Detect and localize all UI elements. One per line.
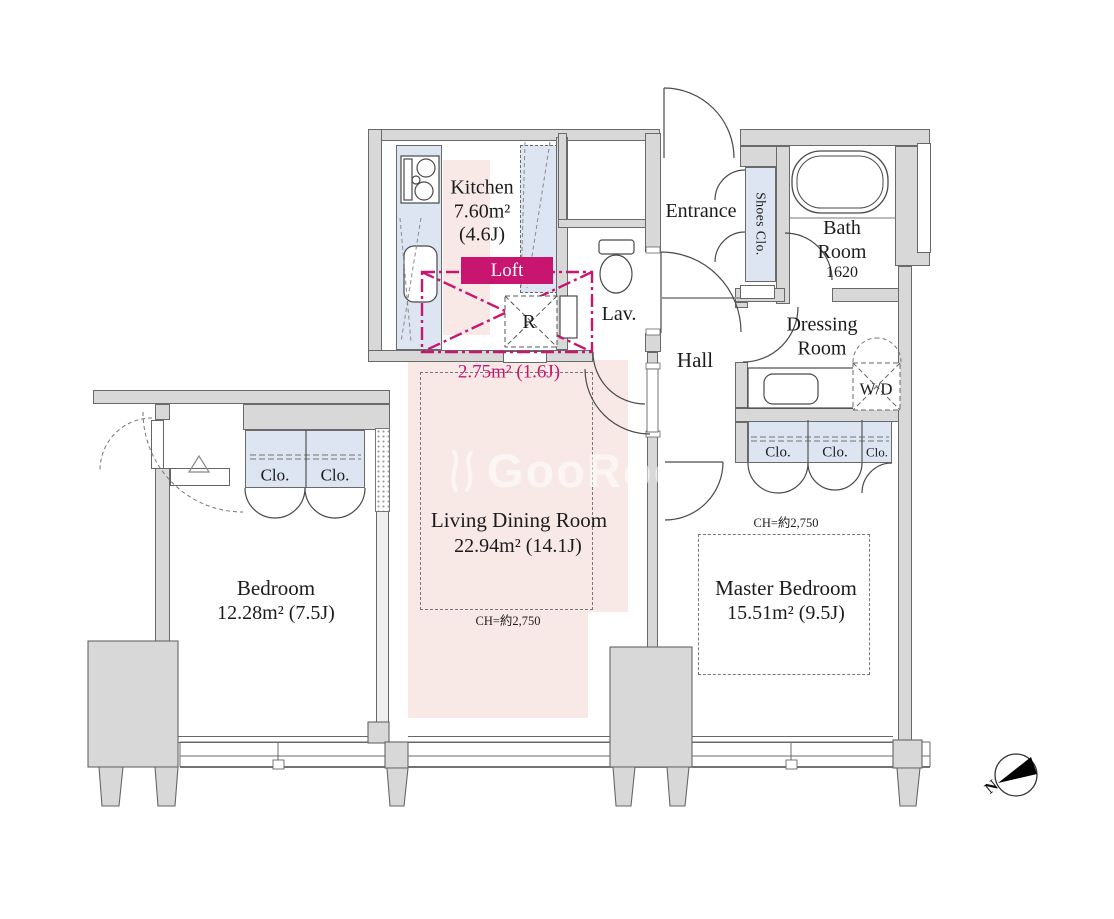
master-closet-label: Clo. bbox=[765, 445, 790, 462]
glass-partition bbox=[375, 428, 390, 512]
watermark-icon bbox=[445, 448, 479, 494]
utility-niche bbox=[917, 143, 931, 253]
master-closet-label: Clo. bbox=[866, 446, 888, 461]
loft-banner: Loft bbox=[461, 257, 553, 284]
wall bbox=[155, 404, 170, 420]
watermark-text: GooRooM bbox=[487, 443, 726, 498]
wall bbox=[368, 129, 660, 141]
bathroom-name-line2: Room bbox=[818, 241, 867, 265]
lavatory-label: Lav. bbox=[602, 303, 637, 325]
living-window bbox=[408, 736, 610, 743]
balcony-lines bbox=[180, 742, 930, 767]
loft-storage-label: R bbox=[522, 311, 535, 333]
wall bbox=[368, 129, 382, 362]
bathroom-size: 1620 bbox=[818, 264, 867, 283]
wall bbox=[558, 133, 567, 228]
wall bbox=[243, 404, 390, 430]
loft-area-label: 2.75m² (1.6J) bbox=[458, 361, 560, 382]
master-closet-label: Clo. bbox=[822, 445, 847, 462]
bathroom-label: Bath Room 1620 bbox=[818, 217, 867, 283]
bedroom-entry-door bbox=[151, 420, 164, 469]
vanity-icon bbox=[748, 368, 854, 408]
wall bbox=[645, 133, 661, 252]
compass-needle-icon bbox=[998, 757, 1037, 783]
bedroom-entry-sill bbox=[170, 468, 230, 486]
wall bbox=[898, 266, 912, 742]
wall bbox=[740, 129, 930, 146]
master-window bbox=[692, 736, 893, 743]
compass: N bbox=[982, 754, 1037, 797]
kitchen-tatami: (4.6J) bbox=[450, 224, 513, 248]
master-name: Master Bedroom bbox=[715, 577, 857, 601]
watermark: GooRooM bbox=[445, 443, 726, 498]
bedroom-area: 12.28m² (7.5J) bbox=[217, 602, 335, 624]
kitchen-counter bbox=[396, 145, 442, 350]
bathtub-icon bbox=[792, 151, 888, 213]
bedroom-name: Bedroom bbox=[237, 577, 315, 601]
hall-label: Hall bbox=[677, 349, 713, 373]
wall bbox=[368, 350, 593, 362]
bedroom-closet-label: Clo. bbox=[321, 465, 350, 484]
washer-dryer-label: W/D bbox=[859, 379, 892, 398]
master-area: 15.51m² (9.5J) bbox=[727, 602, 845, 624]
living-ceiling-height: CH=約2,750 bbox=[475, 614, 540, 628]
floorplan: GooRooM bbox=[0, 0, 1114, 919]
wall bbox=[645, 333, 661, 352]
kitchen-area: 7.60m² bbox=[450, 200, 513, 224]
balcony-dividers bbox=[273, 760, 797, 769]
wall bbox=[776, 146, 790, 304]
entrance-step-line bbox=[662, 297, 740, 299]
dressing-room-line1: Dressing bbox=[786, 313, 857, 337]
wall bbox=[735, 362, 748, 408]
bathroom-name-line1: Bath bbox=[818, 217, 867, 241]
living-area: 22.94m² (14.1J) bbox=[454, 535, 582, 557]
loft-label: Loft bbox=[491, 260, 524, 282]
kitchen-name: Kitchen bbox=[450, 177, 513, 201]
wall bbox=[735, 302, 748, 308]
dressing-room-label: Dressing Room bbox=[786, 313, 857, 360]
kitchen-label: Kitchen 7.60m² (4.6J) bbox=[450, 177, 513, 248]
entrance-label: Entrance bbox=[665, 200, 736, 222]
entrance-step-stone bbox=[740, 285, 775, 299]
master-ceiling-height: CH=約2,750 bbox=[753, 516, 818, 530]
wall bbox=[647, 352, 658, 742]
compass-circle bbox=[995, 754, 1037, 796]
wall bbox=[558, 219, 652, 228]
bedroom-closet-label: Clo. bbox=[261, 465, 290, 484]
toilet-icon bbox=[599, 240, 634, 293]
wall bbox=[155, 468, 170, 652]
wall bbox=[735, 422, 748, 463]
partition-wall bbox=[376, 512, 389, 736]
wall bbox=[735, 408, 912, 422]
living-name: Living Dining Room bbox=[431, 509, 607, 533]
wall bbox=[93, 390, 390, 404]
bedroom-window bbox=[172, 736, 368, 743]
shoes-closet-label: Shoes Clo. bbox=[753, 192, 768, 256]
dressing-room-line2: Room bbox=[786, 337, 857, 361]
compass-north-label: N bbox=[982, 777, 1002, 798]
